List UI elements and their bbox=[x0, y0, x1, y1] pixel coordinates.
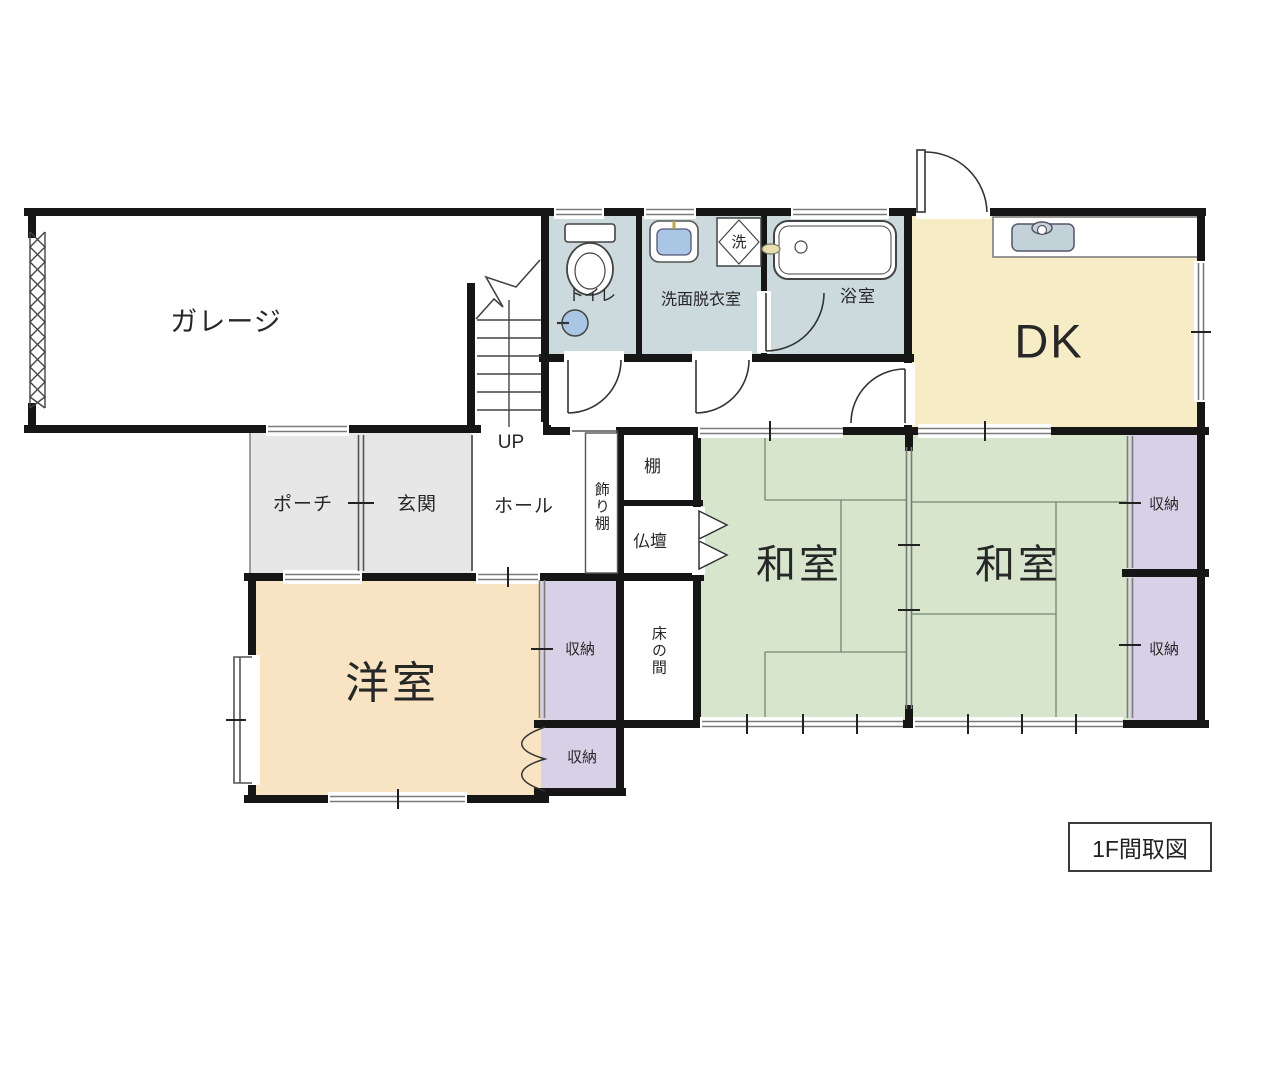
label-tokonoma: 床の間 bbox=[650, 626, 666, 677]
garage-shutter-icon bbox=[30, 232, 45, 408]
label-storage-bottom-right: 収納 bbox=[1149, 642, 1179, 658]
kitchen-counter bbox=[993, 217, 1199, 257]
label-hall: ホール bbox=[494, 497, 554, 517]
floor-plan-title-box: 1F間取図 bbox=[1068, 822, 1212, 872]
washroom-door bbox=[696, 360, 749, 413]
toilet-door bbox=[568, 360, 621, 413]
label-storage-mid-top: 収納 bbox=[565, 642, 595, 658]
label-storage-mid-bottom: 収納 bbox=[567, 750, 597, 766]
label-japanese-room-2: 和室 bbox=[975, 544, 1061, 586]
floor-plan: ガレージ トイレ 洗面脱衣室 洗 浴室 DK ポーチ 玄関 ホール UP 飾り棚… bbox=[0, 0, 1280, 1066]
stair-break-line bbox=[476, 260, 540, 319]
label-porch: ポーチ bbox=[273, 495, 333, 515]
label-entrance: 玄関 bbox=[397, 495, 437, 515]
entry-door-leaf bbox=[917, 150, 925, 212]
label-toilet: トイレ bbox=[568, 289, 616, 306]
washbasin-icon bbox=[650, 221, 698, 262]
label-western-room: 洋室 bbox=[345, 661, 439, 707]
label-stairs-up: UP bbox=[498, 433, 524, 453]
label-japanese-room-1: 和室 bbox=[756, 544, 842, 586]
label-dk: DK bbox=[1014, 316, 1083, 365]
label-display-shelf: 飾り棚 bbox=[593, 482, 609, 533]
stairs-icon bbox=[476, 260, 541, 427]
label-bathroom: 浴室 bbox=[840, 288, 876, 306]
label-laundry: 洗 bbox=[731, 235, 746, 251]
bathtub-icon bbox=[762, 221, 896, 279]
label-shelf: 棚 bbox=[644, 458, 662, 476]
label-garage: ガレージ bbox=[170, 308, 281, 336]
label-butsudan: 仏壇 bbox=[633, 533, 667, 551]
entry-door-swing bbox=[925, 152, 987, 212]
label-storage-top-right: 収納 bbox=[1149, 497, 1179, 513]
dk-hall-door bbox=[851, 369, 905, 423]
bath-faucet-icon bbox=[762, 244, 780, 254]
label-washroom: 洗面脱衣室 bbox=[661, 293, 741, 310]
floor-plan-title: 1F間取図 bbox=[1092, 830, 1188, 864]
